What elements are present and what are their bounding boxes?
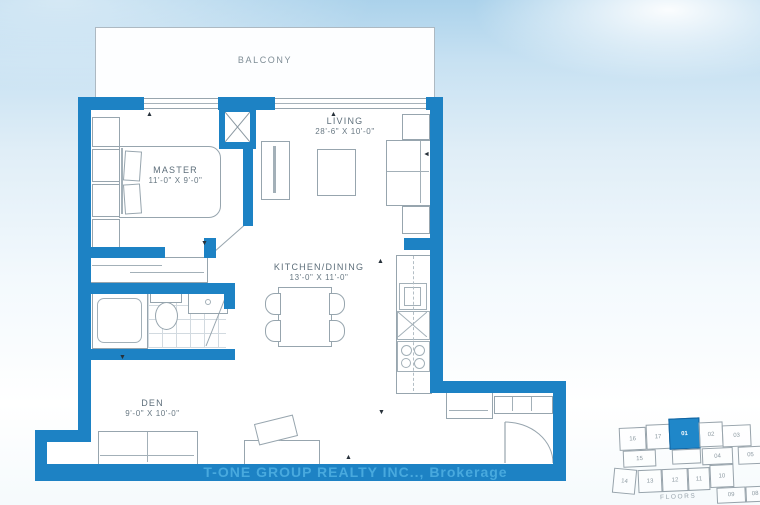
unit-09-label: 09: [728, 492, 735, 498]
keyplan-unit-12: 12: [662, 468, 689, 492]
unit-02-label: 02: [708, 431, 715, 437]
wall-bath-top: [85, 283, 235, 294]
entry-bench: [494, 396, 553, 414]
wall-right-upper: [430, 97, 443, 250]
bed-pillow-2: [123, 183, 142, 214]
dining-table: [278, 287, 332, 347]
keyplan-unit-01-highlighted: 01: [668, 417, 700, 449]
wall-entry-top: [438, 381, 566, 393]
master-name: MASTER: [118, 165, 233, 175]
unit-08-label: 08: [752, 491, 759, 497]
wall-living-kitchen-stub: [404, 238, 434, 250]
den-sofa-center-line: [147, 432, 148, 462]
keyplan-lobby: [672, 448, 702, 464]
shaft-x-icon: [225, 112, 250, 142]
den-label: DEN 9'-0" X 10'-0": [95, 398, 210, 418]
side-table-bottom: [402, 206, 430, 234]
arrow-master-door: ▼: [201, 240, 208, 247]
master-wardrobe-4: [92, 219, 120, 249]
living-label: LIVING 28'-6" X 10'-0": [295, 116, 395, 136]
master-dims: 11'-0" X 9'-0": [118, 176, 233, 185]
arrow-bath-door: ▼: [119, 354, 126, 361]
den-desk: [244, 440, 320, 465]
den-sofa: [98, 431, 198, 465]
burner-3: [401, 358, 411, 368]
dining-chair-1: [265, 293, 281, 315]
keyplan-unit-09: 09: [716, 486, 746, 503]
unit-05-label: 05: [747, 452, 754, 458]
arrow-kitchen-lower: ▼: [378, 409, 385, 416]
den-sofa-seat-line: [100, 455, 194, 456]
dining-chair-2: [265, 320, 281, 342]
sofa-cushion-line: [387, 171, 429, 172]
entry-bench-tick-2: [531, 397, 532, 411]
keyplan-unit-03: 03: [722, 424, 752, 447]
wall-right-lower: [430, 250, 443, 393]
living-dims: 28'-6" X 10'-0": [295, 127, 395, 136]
closet-slider-2: [130, 272, 204, 273]
keyplan-unit-05: 05: [738, 446, 760, 465]
master-label: MASTER 11'-0" X 9'-0": [118, 165, 233, 185]
brokerage-watermark: T-ONE GROUP REALTY INC.., Brokerage: [35, 464, 566, 481]
keyplan-unit-10: 10: [709, 464, 734, 488]
floorplan-screenshot: BALCONY MASTER 11'-0" X 9'-0" LIVING 28'…: [0, 0, 760, 505]
unit-13-label: 13: [647, 478, 654, 484]
entry-door: [503, 420, 555, 465]
living-name: LIVING: [295, 116, 395, 126]
toilet-bowl: [155, 302, 178, 330]
keyplan-unit-02: 02: [699, 421, 724, 447]
oven-x-icon: [398, 312, 427, 337]
keyplan: 16 17 01 02 03 15 04 05 14 13 12 11 10 0…: [609, 405, 760, 505]
unit-15-label: 15: [636, 455, 643, 461]
keyplan-unit-16: 16: [619, 427, 647, 451]
wall-bath-right: [224, 283, 235, 309]
master-closet: [90, 257, 208, 283]
keyplan-unit-11: 11: [688, 467, 711, 491]
keyplan-unit-13: 13: [638, 469, 663, 493]
tv-panel: [273, 146, 276, 193]
balcony-label: BALCONY: [238, 55, 292, 65]
arrow-living-wall: ◄: [423, 151, 430, 158]
kitchen-dims: 13'-0" X 11'-0": [263, 273, 375, 282]
keyplan-unit-04: 04: [702, 447, 734, 465]
wall-bath-bottom: [85, 349, 235, 360]
unit-17-label: 17: [655, 434, 662, 440]
entry-bench-tick-1: [512, 397, 513, 411]
kitchen-name: KITCHEN/DINING: [263, 262, 375, 272]
wall-left: [78, 97, 91, 442]
bottom-wall-watermark: T-ONE GROUP REALTY INC.., Brokerage: [35, 464, 566, 481]
arrow-kitchen: ▲: [377, 258, 384, 265]
unit-12-label: 12: [672, 477, 679, 483]
entry-closet-line: [449, 410, 488, 411]
unit-01-label: 01: [681, 430, 688, 436]
burner-1: [401, 345, 412, 356]
keyplan-caption: FLOORS: [641, 492, 716, 502]
unit-04-label: 04: [714, 453, 721, 459]
kitchen-label: KITCHEN/DINING 13'-0" X 11'-0": [263, 262, 375, 282]
window-living: [275, 98, 426, 109]
balcony-area: BALCONY: [95, 27, 435, 100]
unit-11-label: 11: [696, 476, 702, 482]
unit-10-label: 10: [718, 473, 725, 479]
master-wardrobe-2: [92, 149, 120, 182]
coffee-table: [317, 149, 356, 196]
window-master: [144, 98, 218, 109]
unit-16-label: 16: [629, 436, 636, 442]
sofa-back-line: [420, 141, 421, 203]
bathtub-inner: [97, 298, 142, 343]
den-name: DEN: [95, 398, 210, 408]
burner-2: [414, 345, 425, 356]
master-wardrobe-1: [92, 117, 120, 147]
master-wardrobe-3: [92, 184, 120, 217]
den-dims: 9'-0" X 10'-0": [95, 409, 210, 418]
keyplan-unit-14: 14: [612, 468, 637, 495]
unit-14-label: 14: [621, 478, 628, 485]
arrow-den: ▲: [345, 454, 352, 461]
keyplan-unit-08: 08: [745, 486, 760, 503]
burner-4: [414, 358, 425, 369]
keyplan-unit-17: 17: [646, 424, 671, 450]
keyplan-unit-15: 15: [623, 449, 657, 467]
arrow-window-living: ▲: [330, 111, 337, 118]
side-table-top: [402, 114, 430, 140]
arrow-window-master: ▲: [146, 111, 153, 118]
entry-closet: [446, 390, 493, 419]
closet-slider-1: [92, 265, 162, 266]
living-sofa: [386, 140, 432, 206]
unit-03-label: 03: [733, 433, 740, 439]
wall-master-closet: [85, 247, 165, 258]
shaft-interior: [225, 112, 250, 142]
